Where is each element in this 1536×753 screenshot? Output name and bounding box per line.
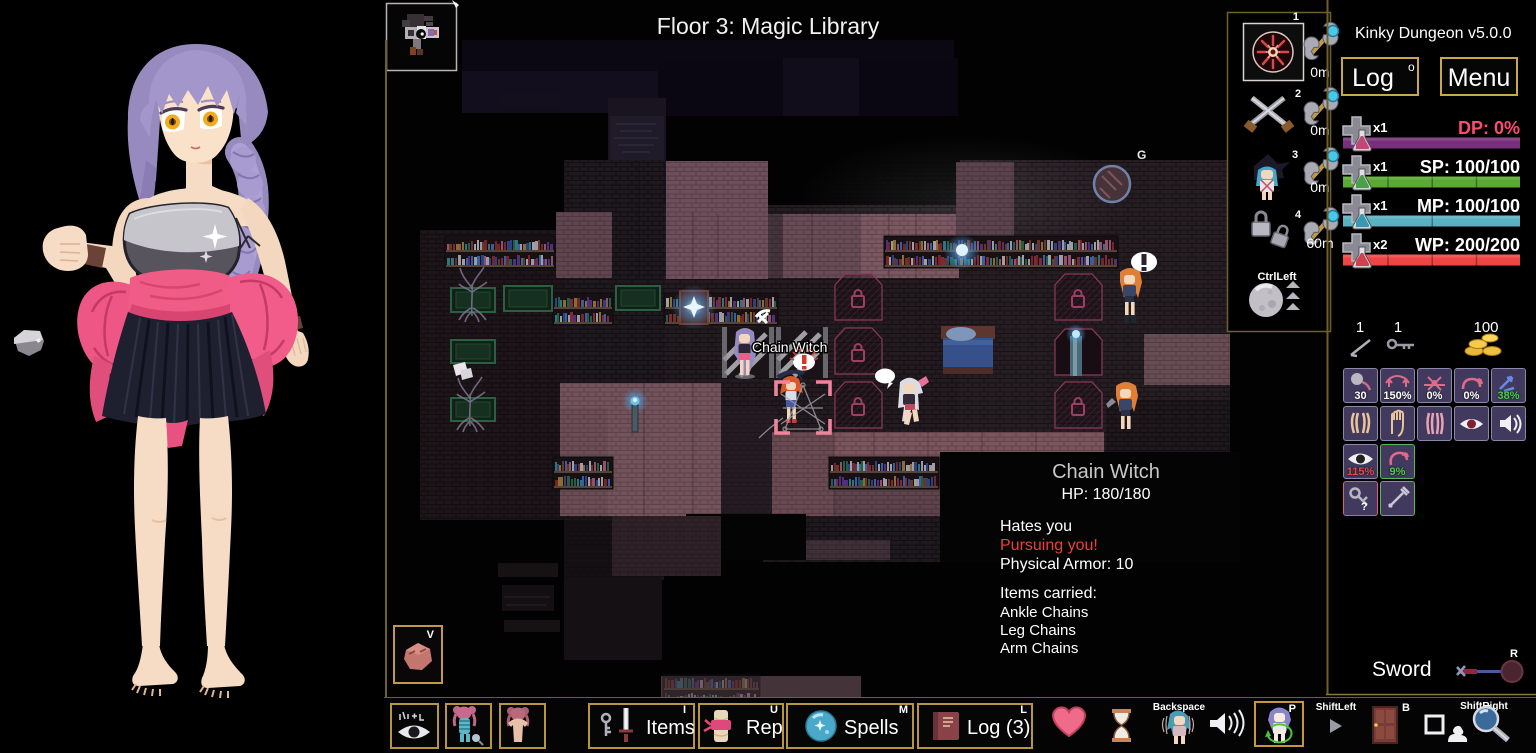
svg-text:x2: x2 — [1373, 237, 1387, 252]
svg-text:WP: 200/200: WP: 200/200 — [1415, 235, 1520, 255]
svg-text:Hates you: Hates you — [1000, 518, 1072, 535]
svg-text:B: B — [1402, 702, 1410, 714]
svg-text:x1: x1 — [1373, 159, 1387, 174]
svg-text:DP: 0%: DP: 0% — [1458, 118, 1520, 138]
svg-text:Arm Chains: Arm Chains — [1000, 640, 1078, 657]
svg-text:1: 1 — [1394, 319, 1402, 336]
svg-text:3: 3 — [1292, 149, 1298, 161]
svg-text:CtrlLeft: CtrlLeft — [1257, 271, 1296, 283]
svg-text:L: L — [1020, 704, 1027, 716]
svg-text:P: P — [1289, 703, 1296, 715]
svg-text:ShiftLeft: ShiftLeft — [1316, 702, 1357, 713]
svg-text:x1: x1 — [1373, 198, 1387, 213]
svg-text:G: G — [1137, 148, 1146, 162]
svg-text:M: M — [899, 704, 908, 716]
svg-text:HP: 180/180: HP: 180/180 — [1062, 486, 1151, 503]
svg-text:Pursuing you!: Pursuing you! — [1000, 537, 1098, 554]
svg-text:V: V — [427, 629, 435, 641]
svg-text:Items carried:: Items carried: — [1000, 585, 1097, 602]
svg-text:x1: x1 — [1373, 120, 1387, 135]
svg-text:Items: Items — [646, 717, 695, 739]
svg-text:Floor 3: Magic Library: Floor 3: Magic Library — [657, 13, 880, 39]
svg-text:Log (3): Log (3) — [967, 717, 1030, 739]
svg-text:MP: 100/100: MP: 100/100 — [1417, 196, 1520, 216]
svg-text:SP: 100/100: SP: 100/100 — [1420, 157, 1520, 177]
svg-text:?: ? — [1361, 501, 1368, 513]
svg-text:Chain Witch: Chain Witch — [752, 339, 827, 355]
svg-text:Spells: Spells — [844, 717, 898, 739]
svg-text:4: 4 — [1295, 209, 1302, 221]
svg-text:o: o — [1408, 60, 1415, 74]
svg-text:1: 1 — [1293, 11, 1299, 23]
svg-text:Kinky Dungeon v5.0.0: Kinky Dungeon v5.0.0 — [1355, 25, 1512, 42]
svg-text:Menu: Menu — [1448, 64, 1511, 92]
svg-text:1: 1 — [1356, 319, 1364, 336]
svg-text:Chain Witch: Chain Witch — [1052, 461, 1160, 483]
svg-text:Leg Chains: Leg Chains — [1000, 622, 1076, 639]
svg-text:100: 100 — [1473, 319, 1498, 336]
svg-text:Physical Armor: 10: Physical Armor: 10 — [1000, 556, 1133, 573]
svg-text:Rep: Rep — [746, 717, 783, 739]
svg-text:Ankle Chains: Ankle Chains — [1000, 604, 1088, 621]
svg-text:I: I — [683, 704, 686, 716]
svg-text:Log: Log — [1352, 64, 1394, 92]
svg-text:U: U — [770, 704, 778, 716]
svg-text:2: 2 — [1295, 88, 1301, 100]
